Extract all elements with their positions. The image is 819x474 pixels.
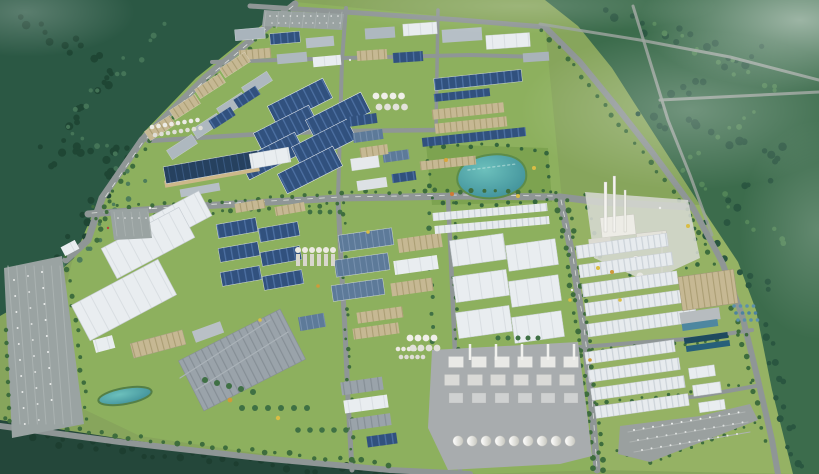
forest-shape xyxy=(777,415,784,422)
roadside-trees-shape xyxy=(83,406,86,409)
greenery-accents-shape xyxy=(4,341,8,345)
forest-shape xyxy=(77,443,83,449)
forest-shape xyxy=(763,322,768,327)
greenery-accents-shape xyxy=(291,405,297,411)
chemical-plant-south-shape xyxy=(449,393,463,403)
parking-lots-shape xyxy=(660,446,662,448)
roadside-trees-shape xyxy=(126,436,131,441)
roadside-trees-shape xyxy=(221,209,224,212)
parking-lots-shape xyxy=(339,22,341,24)
forest-shape xyxy=(151,33,157,39)
roadside-trees-shape xyxy=(468,188,473,193)
roadside-trees-shape xyxy=(344,222,347,225)
roadside-trees-shape xyxy=(480,203,484,207)
roadside-trees-shape xyxy=(287,450,293,456)
chemical-plant-south-shape xyxy=(564,357,579,368)
chemical-plant-south-shape xyxy=(564,393,578,403)
chemical-plant-south-shape xyxy=(431,335,438,342)
roadside-trees-shape xyxy=(85,417,88,420)
parking-lots-shape xyxy=(690,419,692,421)
greenery-accents-shape xyxy=(252,405,258,411)
roadside-trees-shape xyxy=(482,189,486,193)
roadside-trees-shape xyxy=(571,228,576,233)
greenery-accents-shape xyxy=(265,405,271,411)
roadside-trees-shape xyxy=(745,333,749,337)
roadside-trees-shape xyxy=(103,216,108,221)
roadside-trees-shape xyxy=(3,416,7,420)
roadside-trees-shape xyxy=(533,199,538,204)
greenery-accents-shape xyxy=(316,284,320,288)
forest-shape xyxy=(772,359,779,366)
greenery-accents-shape xyxy=(496,336,501,341)
forest-shape xyxy=(113,151,118,156)
roadside-trees-shape xyxy=(547,37,552,42)
parking-lots-shape xyxy=(298,22,300,24)
roadside-trees-shape xyxy=(441,201,446,206)
roadside-trees-shape xyxy=(244,199,247,202)
parking-lots-shape xyxy=(24,423,26,425)
greenery-accents-shape xyxy=(7,419,11,423)
roadside-trees-shape xyxy=(346,347,350,351)
forest-shape xyxy=(121,71,126,76)
roadside-trees-shape xyxy=(130,164,135,169)
roadside-trees-shape xyxy=(547,175,550,178)
forest-shape xyxy=(83,103,89,109)
roadside-trees-shape xyxy=(134,154,138,158)
roadside-trees-shape xyxy=(579,348,583,352)
factories-north-center-shape xyxy=(384,104,391,111)
greenery-accents-shape xyxy=(532,166,536,170)
forest-shape xyxy=(89,88,93,92)
roadside-trees-shape xyxy=(454,337,457,340)
parking-lots-shape xyxy=(727,435,729,437)
roadside-trees-shape xyxy=(323,457,327,461)
parking-lots-shape xyxy=(713,426,715,428)
factories-northwest-shape xyxy=(198,126,203,131)
roadside-trees-shape xyxy=(596,450,600,454)
parking-lots-shape xyxy=(305,22,307,24)
chemical-plant-south-shape xyxy=(495,436,505,446)
roadside-trees-shape xyxy=(705,249,710,254)
roadside-trees-shape xyxy=(520,147,524,151)
parking-lots-shape xyxy=(317,15,319,17)
roadside-trees-shape xyxy=(704,243,707,246)
parking-lots-shape xyxy=(17,327,19,329)
greenery-accents-shape xyxy=(659,207,661,209)
roadside-trees-shape xyxy=(228,208,233,213)
roadside-trees-shape xyxy=(533,149,537,153)
parking-lots-shape xyxy=(319,22,321,24)
factories-center-shape xyxy=(317,254,321,266)
parking-lots-shape xyxy=(15,311,17,313)
greenery-accents-shape xyxy=(589,379,591,381)
roadside-trees-shape xyxy=(667,393,670,396)
roadside-trees-shape xyxy=(398,191,402,195)
roadside-trees-shape xyxy=(566,207,572,213)
forest-shape xyxy=(113,145,120,152)
chemical-plant-south-shape xyxy=(410,345,417,352)
roadside-trees-shape xyxy=(427,183,432,188)
parking-lots-shape xyxy=(19,359,21,361)
forest-shape xyxy=(143,179,147,183)
forest-shape xyxy=(65,234,70,239)
factories-northwest-shape xyxy=(179,129,184,134)
roadside-trees-shape xyxy=(743,426,746,429)
roadside-trees-shape xyxy=(458,190,463,195)
parking-lots-shape xyxy=(704,428,706,430)
forest-shape xyxy=(71,132,75,136)
roadside-trees-shape xyxy=(564,246,569,251)
roadside-trees-shape xyxy=(571,292,576,297)
forest-shape xyxy=(51,161,57,167)
chemical-plant-south-shape xyxy=(434,345,441,352)
roadside-trees-shape xyxy=(455,307,459,311)
chemical-plant-south-shape xyxy=(407,335,414,342)
chemical-plant-south-shape xyxy=(467,436,477,446)
roadside-trees-shape xyxy=(427,211,431,215)
forest-shape xyxy=(77,257,83,263)
roadside-trees-shape xyxy=(480,142,483,145)
parking-lots-shape xyxy=(145,217,147,219)
greenery-accents-shape xyxy=(343,427,349,433)
chemical-plant-south-shape xyxy=(491,375,506,386)
roadside-trees-shape xyxy=(111,189,114,192)
roadside-trees-shape xyxy=(746,366,750,370)
roadside-trees-shape xyxy=(695,262,700,267)
roadside-trees-shape xyxy=(660,458,663,461)
roadside-trees-shape xyxy=(108,199,112,203)
forest-shape xyxy=(726,205,730,209)
factories-center-shape xyxy=(404,355,409,360)
roadside-trees-shape xyxy=(328,191,332,195)
factories-north-center-shape xyxy=(393,104,400,111)
factories-north-center-shape xyxy=(373,93,380,100)
roadside-trees-shape xyxy=(737,384,740,387)
factories-center-shape xyxy=(399,355,404,360)
roadside-trees-shape xyxy=(149,440,153,444)
roadside-trees-shape xyxy=(585,320,589,324)
roadside-trees-shape xyxy=(234,200,237,203)
roadside-trees-shape xyxy=(750,389,755,394)
chemical-plant-south-shape xyxy=(423,335,430,342)
roadside-trees-shape xyxy=(91,205,94,208)
greenery-accents-shape xyxy=(250,389,256,395)
roadside-trees-shape xyxy=(317,204,322,209)
forest-shape xyxy=(234,461,239,466)
parking-lots-shape xyxy=(271,22,273,24)
parking-lots-shape xyxy=(324,15,326,17)
parking-lots-shape xyxy=(303,15,305,17)
roadside-trees-shape xyxy=(588,339,592,343)
roadside-trees-shape xyxy=(358,457,364,463)
roadside-trees-shape xyxy=(87,431,91,435)
parking-lots-shape xyxy=(35,387,37,389)
roadside-trees-shape xyxy=(70,294,75,299)
roadside-trees-shape xyxy=(237,449,241,453)
roadside-trees-shape xyxy=(494,189,497,192)
chemical-plant-south-shape xyxy=(514,375,529,386)
parking-lots-shape xyxy=(670,444,672,446)
parking-lots-shape xyxy=(33,355,35,357)
factories-northwest-shape xyxy=(172,130,177,135)
warehouses-east-shape xyxy=(743,318,747,322)
roadside-trees-shape xyxy=(352,460,355,463)
forest-shape xyxy=(722,191,728,197)
roadside-trees-shape xyxy=(506,189,511,194)
roadside-trees-shape xyxy=(591,348,594,351)
roadside-trees-shape xyxy=(744,354,750,360)
greenery-accents-shape xyxy=(278,405,284,411)
factories-north-center-shape xyxy=(401,104,408,111)
chemical-plant-south-shape xyxy=(495,393,509,403)
chemical-plant-south-shape xyxy=(565,436,575,446)
forest-shape xyxy=(724,219,731,226)
roadside-trees-shape xyxy=(387,191,391,195)
roadside-trees-shape xyxy=(348,365,352,369)
roadside-trees-shape xyxy=(346,313,349,316)
roadside-trees-shape xyxy=(566,253,571,258)
roadside-trees-shape xyxy=(84,389,88,393)
factories-center-shape xyxy=(324,254,328,266)
parking-lots-shape xyxy=(700,418,702,420)
roadside-trees-shape xyxy=(567,283,573,289)
parking-lots-shape xyxy=(29,307,31,309)
forest-shape xyxy=(87,148,94,155)
roadside-trees-shape xyxy=(94,217,97,220)
forest-shape xyxy=(112,203,115,206)
roadside-trees-shape xyxy=(600,457,606,463)
forest-shape xyxy=(87,197,94,204)
greenery-accents-shape xyxy=(618,298,622,302)
parking-lots-shape xyxy=(42,287,44,289)
factories-north-center-shape xyxy=(365,26,396,39)
chemical-plant-south-shape xyxy=(415,335,422,342)
roadside-trees-shape xyxy=(549,190,552,193)
roadside-trees-shape xyxy=(597,421,601,425)
forest-shape xyxy=(79,212,85,218)
roadside-trees-shape xyxy=(604,400,608,404)
parking-lots-shape xyxy=(292,22,294,24)
chemical-plant-east-shape xyxy=(624,190,626,232)
roadside-trees-shape xyxy=(280,194,284,198)
forest-shape xyxy=(94,143,100,149)
roadside-trees-shape xyxy=(441,144,446,149)
roadside-trees-shape xyxy=(267,207,271,211)
parking-lots-shape xyxy=(671,423,673,425)
parking-lots-shape xyxy=(723,425,725,427)
forest-shape xyxy=(781,404,786,409)
greenery-accents-shape xyxy=(6,393,10,397)
forest-shape xyxy=(61,138,66,143)
roadside-trees-shape xyxy=(344,337,347,340)
roadside-trees-shape xyxy=(590,465,596,471)
greenery-accents-shape xyxy=(149,207,151,209)
greenery-accents-shape xyxy=(526,336,531,341)
chemical-plant-south-shape xyxy=(468,375,483,386)
factories-center-shape xyxy=(296,254,300,266)
forest-shape xyxy=(788,452,793,457)
forest-shape xyxy=(142,454,147,459)
parking-lots-shape xyxy=(27,275,29,277)
roadside-trees-shape xyxy=(685,267,688,270)
roadside-trees-shape xyxy=(105,210,109,214)
roadside-trees-shape xyxy=(290,195,294,199)
parking-lots-shape xyxy=(698,439,700,441)
forest-shape xyxy=(126,196,132,202)
factories-northwest-shape xyxy=(159,132,164,137)
factories-center-shape xyxy=(302,247,308,253)
forest-shape xyxy=(96,52,103,59)
parking-lots-shape xyxy=(46,335,48,337)
forest-shape xyxy=(799,464,804,469)
roadside-trees-shape xyxy=(558,46,561,49)
parking-lots-shape xyxy=(656,436,658,438)
greenery-accents-shape xyxy=(536,336,541,341)
parking-lots-shape xyxy=(694,429,696,431)
roadside-trees-shape xyxy=(566,265,570,269)
chemical-plant-south-shape xyxy=(469,344,472,360)
forest-shape xyxy=(737,269,743,275)
chemical-plant-south-shape xyxy=(481,436,491,446)
factories-northwest-shape xyxy=(192,127,197,132)
greenery-accents-shape xyxy=(307,427,313,433)
roadside-trees-shape xyxy=(554,191,557,194)
forest-shape xyxy=(767,361,772,366)
greenery-accents-shape xyxy=(4,328,8,332)
parking-lots-shape xyxy=(28,291,30,293)
chemical-plant-south-shape xyxy=(445,375,460,386)
parking-lots-shape xyxy=(117,217,119,219)
parking-lots-shape xyxy=(652,426,654,428)
greenery-accents-shape xyxy=(349,59,351,61)
parking-lots-shape xyxy=(38,419,40,421)
warehouses-east-shape xyxy=(752,304,756,308)
roadside-trees-shape xyxy=(372,460,377,465)
forest-shape xyxy=(206,458,212,464)
parking-lots-shape xyxy=(285,22,287,24)
roadside-trees-shape xyxy=(200,442,205,447)
greenery-accents-shape xyxy=(444,158,448,162)
factories-north-center-shape xyxy=(376,104,383,111)
factories-north-center-shape xyxy=(393,51,424,63)
factories-center-shape xyxy=(303,254,307,266)
roadside-trees-shape xyxy=(223,445,228,450)
parking-lots-shape xyxy=(20,375,22,377)
chemical-plant-south-shape xyxy=(453,436,463,446)
greenery-accents-shape xyxy=(239,405,245,411)
parking-lots-shape xyxy=(124,217,126,219)
roadside-trees-shape xyxy=(736,329,740,333)
forest-shape xyxy=(271,463,275,467)
greenery-accents-shape xyxy=(228,398,233,403)
roadside-trees-shape xyxy=(94,238,99,243)
forest-shape xyxy=(773,395,778,400)
roadside-trees-shape xyxy=(599,442,603,446)
forest-shape xyxy=(58,149,66,157)
parking-lots-shape xyxy=(738,411,740,413)
factories-center-shape xyxy=(330,247,336,253)
chemical-plant-south-shape xyxy=(541,393,555,403)
parking-lots-shape xyxy=(643,427,645,429)
forest-shape xyxy=(791,424,796,429)
chemical-plant-south-shape xyxy=(551,436,561,446)
greenery-accents-shape xyxy=(214,380,220,386)
roadside-trees-shape xyxy=(344,328,347,331)
greenery-accents-shape xyxy=(571,289,573,291)
roadside-trees-shape xyxy=(64,267,69,272)
roadside-trees-shape xyxy=(102,204,107,209)
parking-lots-shape xyxy=(49,383,51,385)
factories-north-center-shape xyxy=(390,93,397,100)
greenery-accents-shape xyxy=(295,427,301,433)
roadside-trees-shape xyxy=(163,201,167,205)
roadside-trees-shape xyxy=(250,447,254,451)
chemical-plant-south-shape xyxy=(472,357,487,368)
forest-shape xyxy=(73,142,81,150)
chemical-plant-south-shape xyxy=(472,393,486,403)
parking-lots-shape xyxy=(685,431,687,433)
roadside-trees-shape xyxy=(600,467,606,473)
greenery-accents-shape xyxy=(107,227,109,229)
roadside-trees-shape xyxy=(335,202,339,206)
roadside-trees-shape xyxy=(560,228,565,233)
roadside-trees-shape xyxy=(351,435,355,439)
roadside-trees-shape xyxy=(453,235,457,239)
roadside-trees-shape xyxy=(445,189,449,193)
factories-north-center-shape xyxy=(381,93,388,100)
roadside-trees-shape xyxy=(755,400,760,405)
roadside-trees-shape xyxy=(506,200,510,204)
forest-shape xyxy=(162,454,167,459)
parking-lots-shape xyxy=(18,343,20,345)
warehouses-east-shape xyxy=(736,318,740,322)
factories-center-shape xyxy=(309,247,315,253)
roadside-trees-shape xyxy=(342,201,345,204)
chemical-plant-south-shape xyxy=(573,344,576,360)
roadside-trees-shape xyxy=(82,380,87,385)
roadside-trees-shape xyxy=(570,217,574,221)
chemical-plant-south-shape xyxy=(518,393,532,403)
roadside-trees-shape xyxy=(349,448,352,451)
parking-lots-shape xyxy=(709,416,711,418)
warehouses-east-shape xyxy=(756,318,760,322)
forest-shape xyxy=(60,437,65,442)
factories-north-center-shape xyxy=(486,32,531,49)
chemical-plant-south-shape xyxy=(537,375,552,386)
roadside-trees-shape xyxy=(591,382,595,386)
parking-lots-shape xyxy=(43,303,45,305)
roadside-trees-shape xyxy=(574,320,578,324)
roadside-trees-shape xyxy=(137,203,140,206)
factories-center-shape xyxy=(410,355,415,360)
roadside-trees-shape xyxy=(298,454,302,458)
factories-northwest-shape xyxy=(163,123,168,128)
roadside-trees-shape xyxy=(338,456,342,460)
roadside-trees-shape xyxy=(764,439,768,443)
roadside-trees-shape xyxy=(348,355,351,358)
factories-northwest-shape xyxy=(150,125,155,130)
roadside-trees-shape xyxy=(325,202,328,205)
parking-lots-shape xyxy=(269,15,271,17)
roadside-trees-shape xyxy=(112,433,118,439)
chemical-plant-south-shape xyxy=(418,345,425,352)
parking-lots-shape xyxy=(719,415,721,417)
parking-lots-shape xyxy=(310,15,312,17)
parking-lots-shape xyxy=(679,443,681,445)
forest-shape xyxy=(780,379,786,385)
roadside-trees-shape xyxy=(641,396,644,399)
roadside-trees-shape xyxy=(528,190,532,194)
